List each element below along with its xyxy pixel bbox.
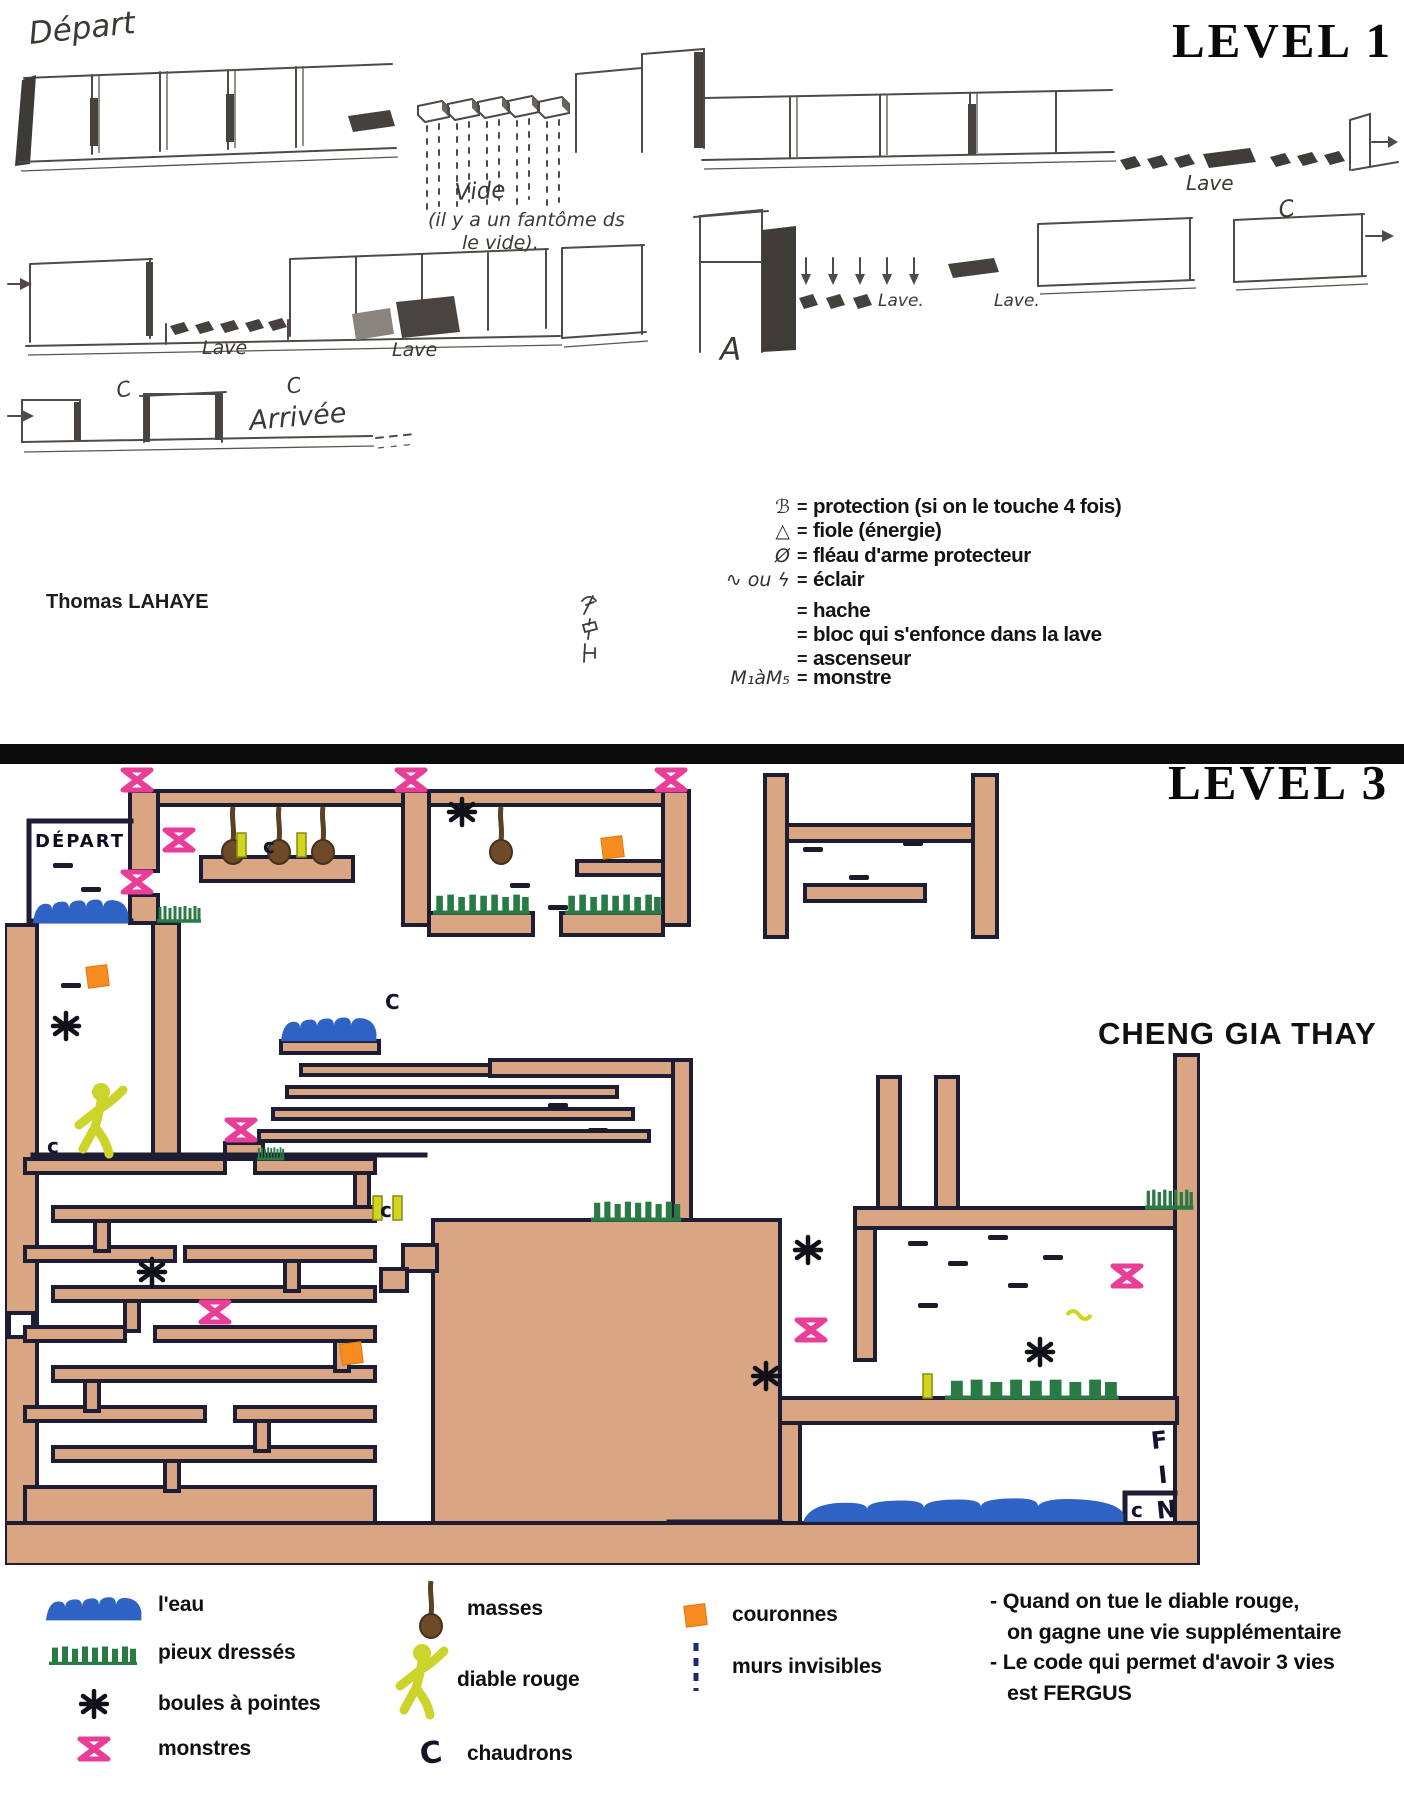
legend-item-cauldron: C chaudrons [395,1736,573,1771]
mace-icon [490,807,512,864]
level3-depart-label: DÉPART [35,830,125,852]
bottle-icon [237,833,246,857]
legend-row-monstre: M₁àM₅ = monstre [578,666,1121,690]
monster-icon [123,770,151,790]
level3-notes: - Quand on tue le diable rouge, on gagne… [990,1586,1390,1708]
cauldron-mark: c [1131,1498,1143,1522]
invisible-wall-icon [690,1641,702,1693]
lave-label: Lave. [878,291,924,311]
water-icon [803,1498,1123,1522]
level1-row1-corridor [15,64,398,171]
crown-icon [601,836,624,859]
legend-item-spike-ball: boules à pointes [30,1689,321,1719]
level1-legend: ℬ = protection (si on le touche 4 fois) … [578,495,1121,690]
marker-a-label: A [718,332,741,368]
monster-icon [657,770,685,790]
eclair-symbol: ∿ ou ϟ [578,569,797,591]
shaded-tower [762,226,796,352]
spikes-icon [591,1202,681,1220]
spike-ball-icon [53,1013,79,1039]
level3-title: LEVEL 3 [1168,754,1389,811]
spike-ball-icon [449,799,475,825]
cauldron-mark: C [1277,196,1297,224]
cauldron-mark: c [263,834,275,858]
spike-ball-icon [753,1363,779,1389]
shaded-post [15,75,36,166]
cauldron-icon: C [418,1735,445,1773]
fiole-symbol: △ [578,520,797,542]
legend-item-red-devil: diable rouge [385,1640,579,1720]
spikes-icon [565,895,662,913]
legend-item-water: l'eau [30,1588,204,1622]
monster-icon [397,770,425,790]
monster-icon [77,1733,111,1765]
legend-row-protection: ℬ = protection (si on le touche 4 fois) [578,495,1121,519]
legend-item-mace: masses [395,1578,543,1640]
bottle-icon [923,1374,932,1398]
cauldron-mark: C [114,376,134,403]
legend-item-monster: monstres [30,1733,251,1765]
lave-label: Lave [392,339,437,361]
cauldron-mark: C [385,990,400,1014]
monster-icon [123,872,151,892]
crown-icon [86,965,109,988]
monster-icon [797,1320,825,1340]
level1-author: Thomas LAHAYE [46,591,209,614]
monster-icon [1113,1266,1141,1286]
level1-row1-lava [1120,114,1398,170]
lave-label: Lave. [994,291,1040,311]
level1-row1-step [576,49,1116,169]
monster-icon [165,830,193,850]
fleau-symbol: Ø [578,545,797,567]
bottle-icon [297,833,306,857]
squiggle-icon [1067,1311,1091,1319]
water-icon [281,1017,376,1041]
note-line: - Quand on tue le diable rouge, [990,1586,1390,1617]
arrivee-label: Arrivée [246,398,348,438]
legend-row-fiole: △ = fiole (énergie) [578,519,1121,543]
spikes-icon [157,906,201,921]
vide-label: Vide [454,177,506,206]
lave-label: Lave [202,337,247,359]
legend-row-eclair: ∿ ou ϟ = éclair [578,568,1121,592]
elevator-symbol-icon [578,641,602,665]
cauldron-mark: C [285,373,304,399]
legend-item-crown: couronnes [660,1601,838,1629]
note-line: on gagne une vie supplémentaire [990,1617,1390,1648]
spikes-icon [48,1641,140,1665]
legend-item-invisible-wall: murs invisibles [660,1641,882,1693]
exit-arrow-icon [1388,136,1398,148]
water-icon [44,1588,144,1622]
depart-label: Départ [27,5,139,52]
protection-symbol: ℬ [578,496,797,518]
vide-note-line2: le vide). [462,232,539,254]
spikes-icon [1145,1190,1193,1208]
legend-row-hache: = hache [578,593,1121,617]
note-line: - Le code qui permet d'avoir 3 vies [990,1647,1390,1678]
spike-ball-icon [1027,1339,1053,1365]
cauldron-mark: c [47,1134,59,1158]
mace-icon [312,807,334,864]
red-devil-icon [392,1640,450,1720]
crown-icon [682,1601,710,1629]
cauldron-mark: c [380,1198,392,1222]
bottle-icon [393,1196,402,1220]
water-icon [33,899,128,923]
mace-icon [416,1578,446,1640]
spikes-icon [257,1147,284,1159]
spike-ball-icon [139,1259,165,1285]
red-devil-icon [79,1083,123,1154]
crown-icon [340,1342,363,1365]
level1-row3 [8,392,416,452]
sinking-block-symbol-icon [578,617,602,641]
spike-ball-icon [79,1689,109,1719]
note-line: est FERGUS [990,1678,1390,1709]
entry-arrow-icon [22,410,34,422]
monster-icon [227,1120,255,1140]
monstre-symbol: M₁àM₅ [578,667,797,689]
lave-label: Lave [1186,171,1234,195]
level3-map: DÉPART c C c c c [5,765,1200,1565]
monster-icon [201,1302,229,1322]
spikes-icon [945,1380,1119,1398]
legend-row-fleau: Ø = fléau d'arme protecteur [578,544,1121,568]
exit-arrow-icon [1382,230,1394,242]
spike-ball-icon [795,1237,821,1263]
level1-title: LEVEL 1 [1172,12,1393,69]
legend-item-spikes: pieux dressés [30,1641,295,1665]
shaded-sill [348,110,395,132]
level1-row2 [8,210,1394,355]
maze-walls [5,775,1199,1565]
axe-symbol-icon [578,593,602,617]
vide-note-line1: (il y a un fantôme ds [428,209,625,231]
scanned-game-maps-page: Départ Vide (il y a un fantôme ds le vid… [0,0,1404,1800]
spikes-icon [433,895,530,913]
